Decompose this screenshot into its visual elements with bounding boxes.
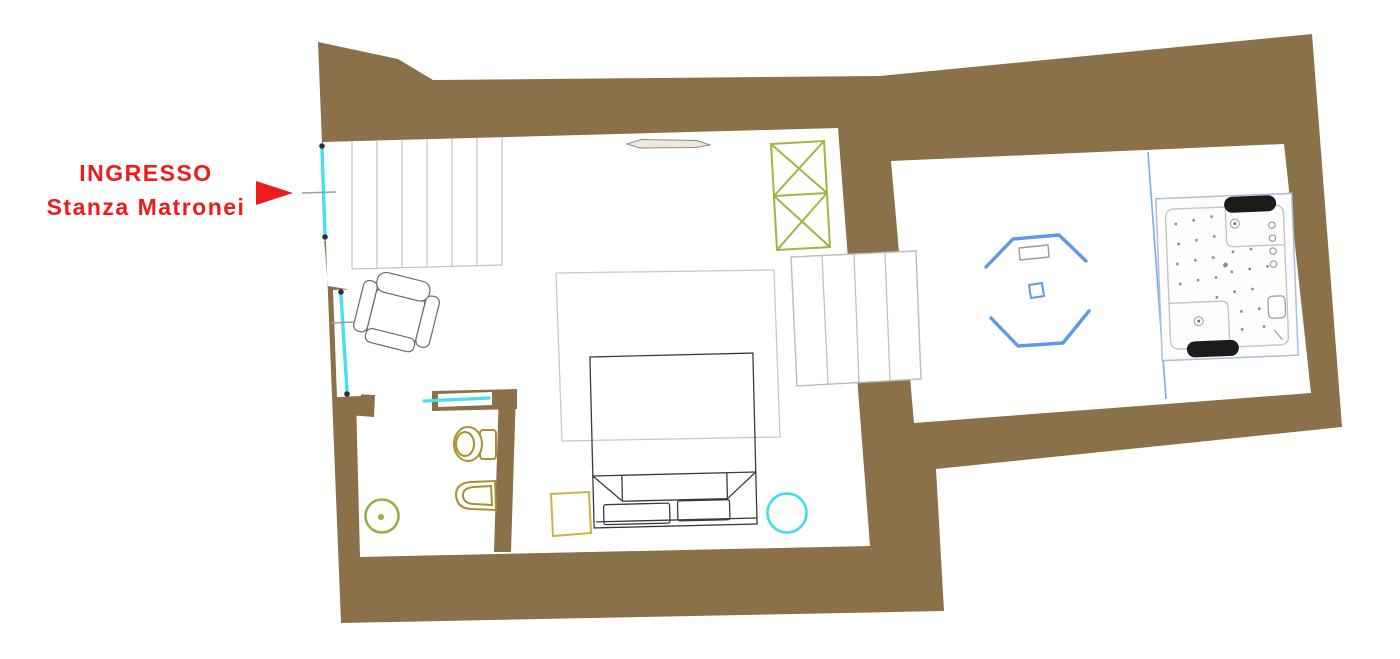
axis-tick [302,192,336,193]
entrance-label-line1: INGRESSO [79,160,212,186]
floor-plan-canvas: INGRESSO Stanza Matronei [0,0,1400,659]
steps-passage [791,251,921,386]
headrest [1224,195,1277,213]
hinge-mark [338,289,344,295]
entrance-label-line2: Stanza Matronei [47,194,246,220]
bidet-icon [456,481,496,510]
bedside-table [551,492,591,536]
floor-plan-page: INGRESSO Stanza Matronei [0,0,1400,659]
headrest [1187,340,1240,358]
jacuzzi-icon [1156,193,1298,360]
toilet-icon [454,427,496,461]
axis-tick [331,322,354,323]
hinge-mark [344,391,350,397]
octagon-top-rect [1019,245,1049,260]
hinge-mark [319,143,325,149]
hinge-mark [322,234,328,240]
radiator-icon [627,140,710,149]
